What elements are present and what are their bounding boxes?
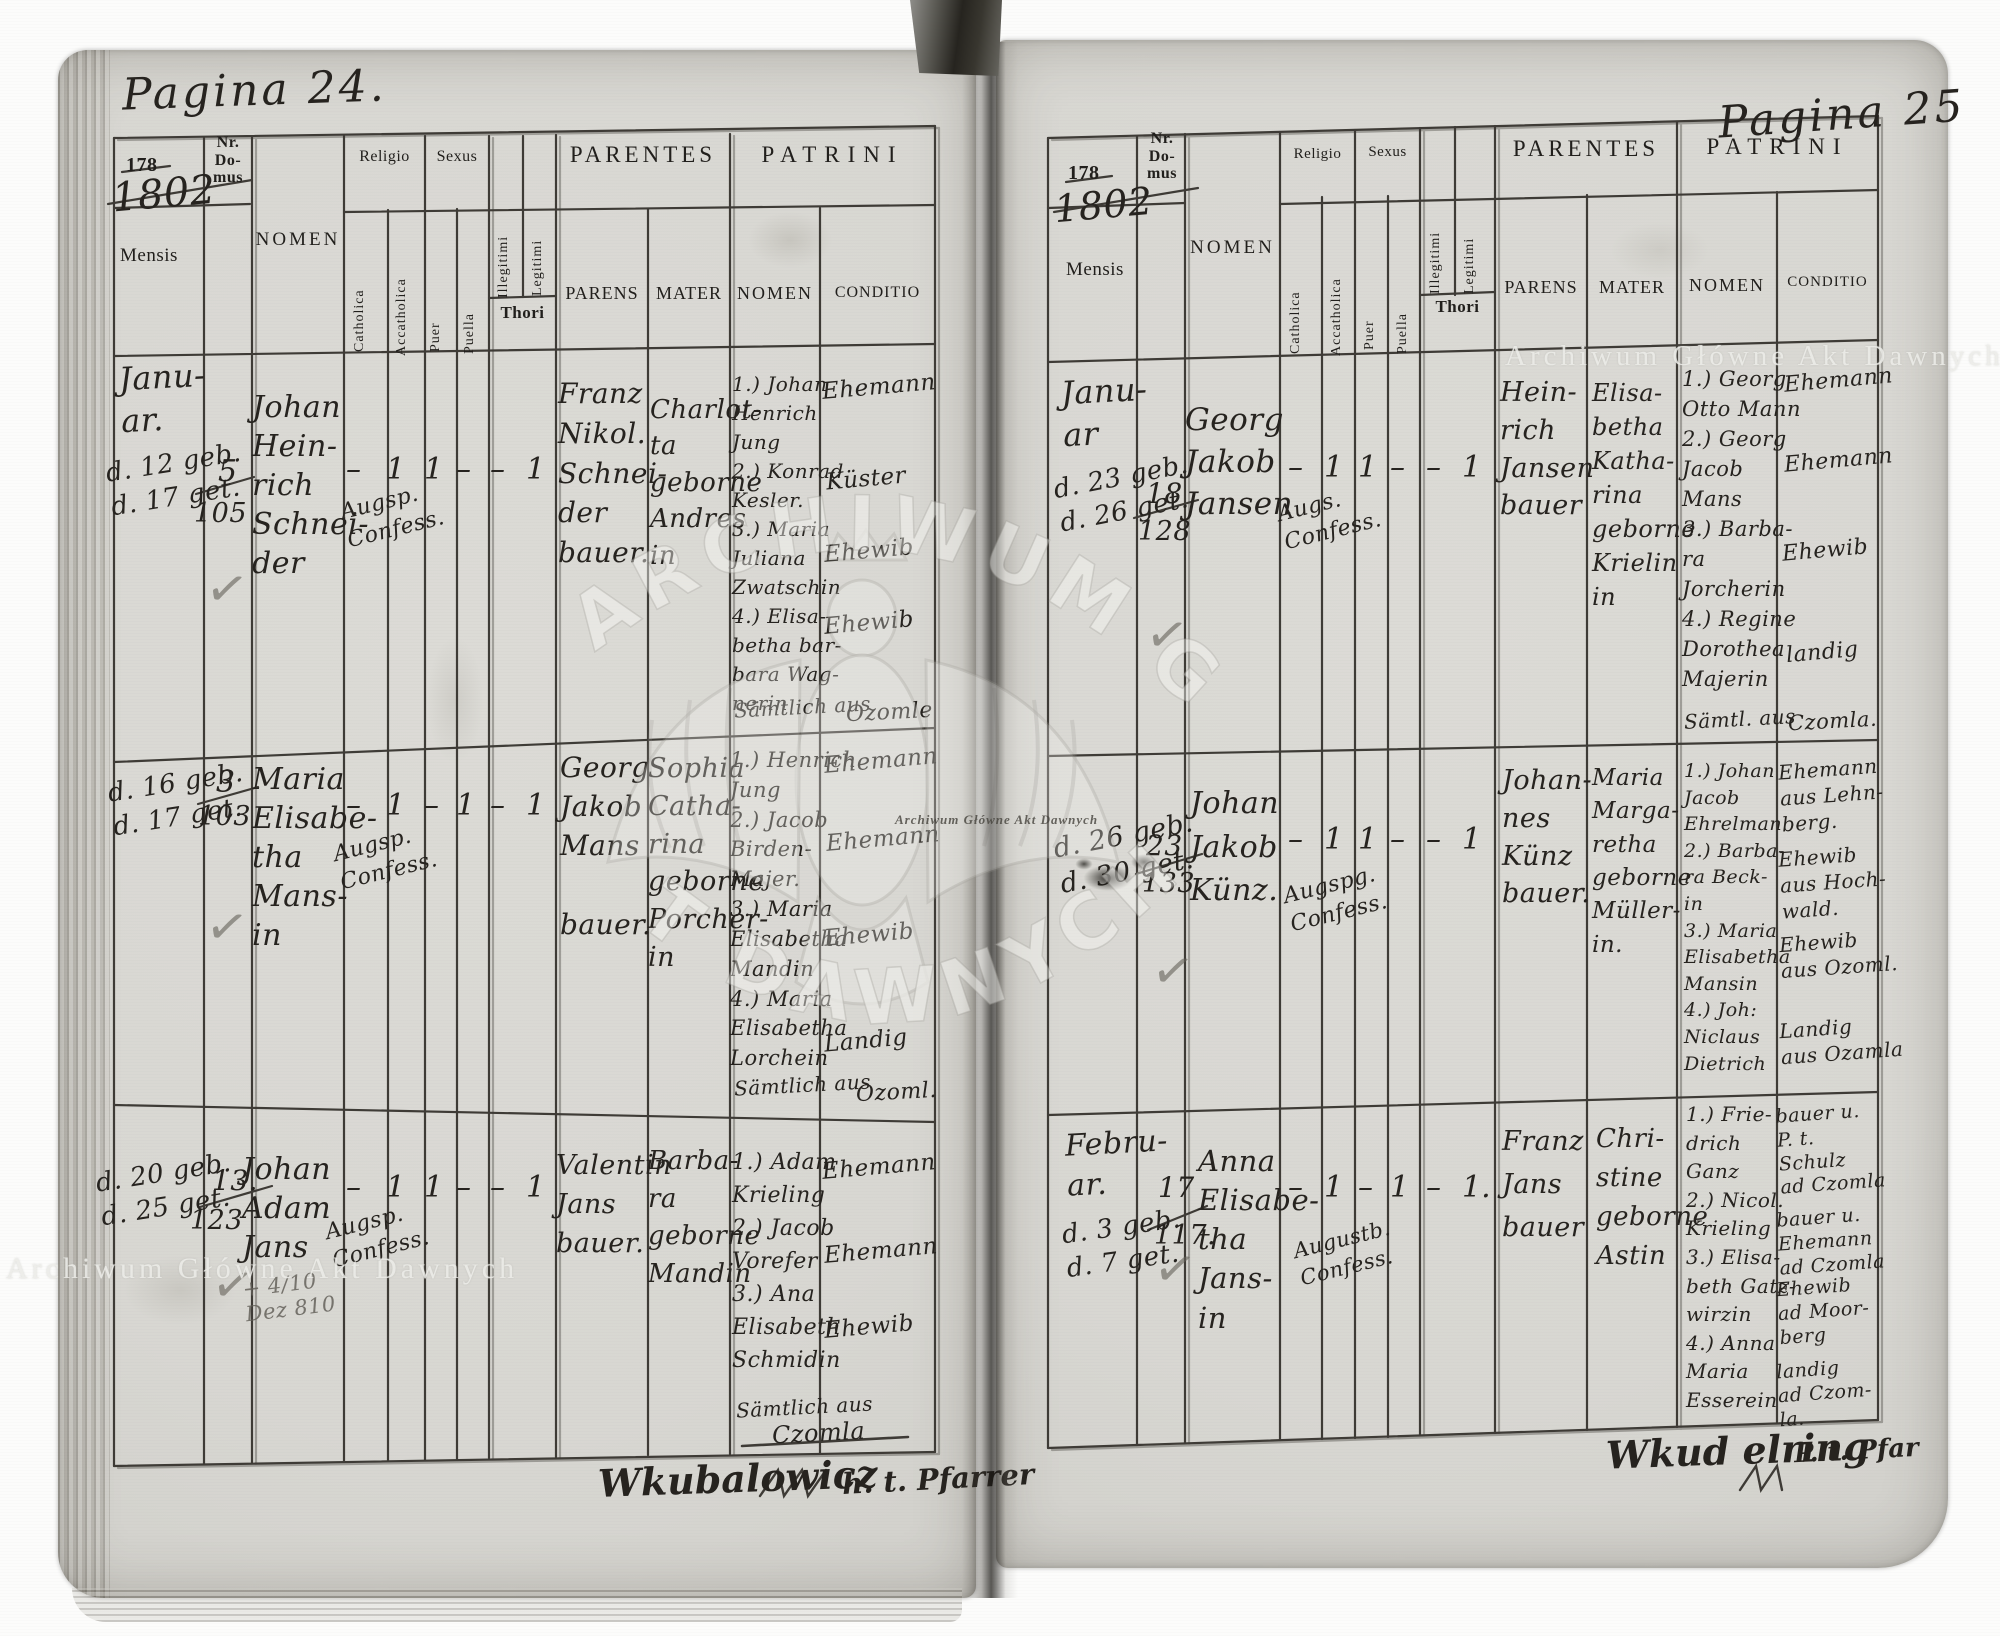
mark-acatholica: 1 [1324,822,1343,857]
mark-acatholica: 1 [386,788,405,823]
mark-puella: – [456,452,471,487]
entry-father: Georg Jakob Mans bauer. [560,748,651,944]
col-patrini-nomen-left: NOMEN [730,284,820,304]
mark-puer: 1 [424,1170,443,1205]
entry-house-number: 23 [1146,828,1183,865]
entry-house-number: 5 [218,452,238,492]
mark-puer: 1 [1358,450,1377,485]
col-patrini-left: PATRINI [730,142,935,167]
entry-name: Johan Jakob Künz. [1190,782,1279,913]
mark-acatholica: 1 [386,1170,405,1205]
entry-godparents-place: Czomla. [1787,706,1877,738]
entry-register-number: 105 [194,496,247,532]
mark-illegitimi: – [1426,822,1441,857]
mark-puer: 1 [424,452,443,487]
mark-acatholica: 1 [386,452,405,487]
entry-conditio: Landig aus Ozamla [1778,1010,1904,1070]
mark-puella: – [1390,450,1405,485]
col-legitimi-right: Legitimi [1462,208,1478,294]
mark-legitimi: 1 [526,1170,545,1205]
entry-mother: Maria Marga- retha geborne Müller- in. [1592,762,1692,962]
entry-conditio: Ehewib aus Ozoml. [1778,924,1898,984]
mark-illegitimi: – [1426,1170,1441,1205]
col-parens-right: PARENS [1495,278,1587,298]
mark-illegitimi: – [1426,450,1441,485]
col-sexus-left: Sexus [425,148,489,166]
mark-legitimi: 1 [526,788,545,823]
mark-acatholica: 1 [1324,450,1343,485]
mark-catholica: – [1288,450,1303,485]
entry-conditio: Ehewib aus Hoch- wald. [1777,839,1888,924]
mark-catholica: – [346,1170,361,1205]
entry-conditio: Ehemann aus Lehn- berg. [1777,752,1886,837]
mark-catholica: – [1288,822,1303,857]
year-handwritten-left: 1802 [110,164,218,226]
mark-legitimi: 1. [1462,1170,1491,1205]
col-parens-left: PARENS [556,284,648,304]
mark-puer: 1 [1358,822,1377,857]
mark-legitimi: 1 [1462,450,1481,485]
entry-house-number: 17 [1158,1170,1195,1207]
col-acatholica-left: Accatholica [394,226,410,356]
mark-puella: – [456,1170,471,1205]
entry-godparents: 1.) Henrich Jung 2.) Jacob Birden- Majer… [730,746,857,1074]
mark-puer: – [424,788,439,823]
entry-conditio: bauer u. Ehemann ad Czomla [1776,1202,1886,1280]
entry-register-number: 123 [190,1203,243,1239]
mark-puella: – [1390,822,1405,857]
entry-godparents: 1.) Johan Jacob Ehrelman 2.) Barba- ra B… [1684,758,1791,1077]
col-illegitimi-right: Illegitimi [1428,206,1444,294]
mark-puella: 1 [456,788,475,823]
col-puer-left: Puer [428,280,444,352]
col-mensis-right: Mensis [1066,260,1124,281]
mark-illegitimi: – [490,788,505,823]
entry-godparents-place: Ozoml. [855,1076,937,1109]
mark-catholica: – [346,788,361,823]
col-religio-right: Religio [1280,146,1355,163]
mark-puer: – [1358,1170,1373,1205]
col-catholica-right: Catholica [1288,224,1304,354]
col-thori-left: Thori [489,304,556,323]
col-mensis-left: Mensis [120,246,178,267]
entry-register-number: 133 [1142,866,1195,902]
col-puer-right: Puer [1362,278,1378,350]
col-thori-right: Thori [1420,298,1495,317]
mark-legitimi: 1 [1462,822,1481,857]
page-number-left: Pagina 24. [121,57,388,124]
bookmark-ribbon [910,0,1002,76]
entry-month: Janu- ar [1060,368,1151,457]
entry-father: Hein- rich Jansen bauer [1500,374,1595,525]
col-conditio-right: CONDITIO [1777,274,1878,291]
col-patrini-nomen-right: NOMEN [1677,276,1777,296]
mark-acatholica: 1 [1324,1170,1343,1205]
col-nomen-left: NOMEN [252,230,344,251]
entry-father: Franz Jans bauer [1502,1120,1584,1250]
col-patrini-right: PATRINI [1677,134,1878,159]
col-puella-left: Puella [462,276,478,354]
entry-month: Janu- ar. [118,354,209,443]
col-conditio-left: CONDITIO [820,284,935,302]
entry-conditio: bauer u. P. t. Schulz ad Czomla [1775,1098,1887,1200]
entry-house-number: 18 [1146,476,1183,513]
col-parentes-right: PARENTES [1495,136,1677,161]
entry-register-number: 103 [198,799,251,835]
col-nr-domus-left: Nr. Do- mus [204,134,252,187]
col-parentes-left: PARENTES [556,142,730,167]
col-puella-right: Puella [1395,274,1411,354]
col-nomen-right: NOMEN [1185,238,1280,259]
scanned-parish-register-spread: Pagina 24. 178 1802 Nr. Do- mus Mensis N… [0,0,2000,1636]
entry-name: Johan Adam Jans [242,1150,331,1267]
col-nr-domus-right: Nr. Do- mus [1139,130,1185,183]
col-sexus-right: Sexus [1355,144,1420,161]
col-mater-right: MATER [1587,278,1677,298]
year-handwritten-right: 1802 [1052,176,1155,235]
entry-conditio: Ehewib ad Moor- berg [1776,1273,1872,1350]
col-religio-left: Religio [344,148,425,166]
col-illegitimi-left: Illegitimi [496,210,512,298]
entry-conditio: landig ad Czom- la. [1776,1355,1875,1433]
mark-legitimi: 1 [526,452,545,487]
entry-godparents-place: Ozomle [845,696,933,730]
mark-catholica: – [346,452,361,487]
mark-illegitimi: – [490,452,505,487]
entry-house-number: 3 [216,763,236,803]
mark-puella: 1 [1390,1170,1409,1205]
col-mater-left: MATER [648,284,730,304]
entry-father: Johan- nes Künz bauer. [1502,762,1592,913]
mark-illegitimi: – [490,1170,505,1205]
entry-godparents: 1.) Georg Otto Mann 2.) Georg Jacob Mans… [1682,364,1801,694]
entry-month: Febru- ar. [1064,1121,1171,1205]
col-catholica-left: Catholica [352,228,368,352]
entry-godparents-place: Czomla [771,1416,866,1453]
mark-catholica: – [1288,1170,1303,1205]
entry-register-number: 128 [1138,514,1191,550]
entry-mother: Elisa- betha Katha- rina geborne Krielin… [1592,376,1696,615]
col-acatholica-right: Accatholica [1329,222,1345,356]
col-legitimi-left: Legitimi [530,212,546,296]
